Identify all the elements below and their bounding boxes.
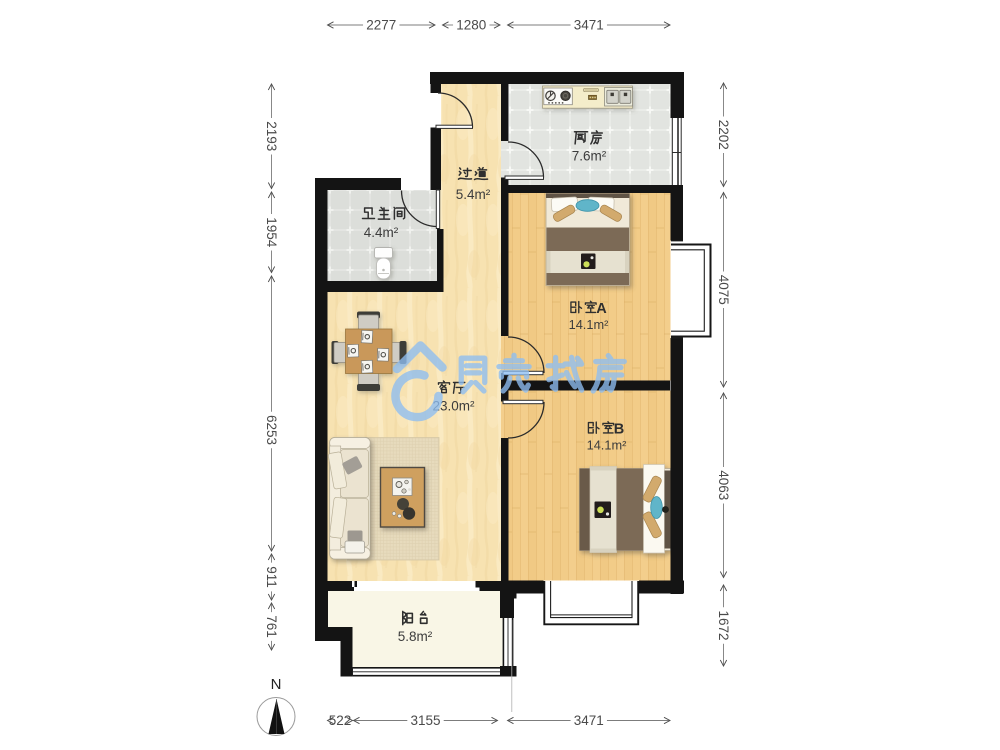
svg-text:5.4m²: 5.4m² <box>456 187 491 202</box>
svg-text:2277: 2277 <box>366 18 396 33</box>
svg-text:4075: 4075 <box>716 275 731 305</box>
svg-text:6253: 6253 <box>264 415 279 445</box>
svg-text:1954: 1954 <box>264 217 279 248</box>
svg-text:5.8m²: 5.8m² <box>398 629 433 644</box>
svg-text:N: N <box>271 676 282 693</box>
svg-text:3471: 3471 <box>574 18 604 33</box>
svg-text:911: 911 <box>264 566 279 588</box>
svg-text:4.4m²: 4.4m² <box>364 225 399 240</box>
svg-text:522: 522 <box>329 713 352 728</box>
svg-text:7.6m²: 7.6m² <box>572 149 607 164</box>
svg-text:B: B <box>614 422 624 438</box>
svg-text:1672: 1672 <box>716 610 731 640</box>
svg-text:3155: 3155 <box>410 713 440 728</box>
svg-text:3471: 3471 <box>574 713 604 728</box>
svg-text:A: A <box>596 301 607 317</box>
svg-text:14.1m²: 14.1m² <box>587 438 628 453</box>
svg-text:14.1m²: 14.1m² <box>569 317 610 332</box>
svg-text:761: 761 <box>264 615 279 638</box>
svg-text:2193: 2193 <box>264 121 279 151</box>
svg-text:1280: 1280 <box>456 18 486 33</box>
svg-text:2202: 2202 <box>716 120 731 150</box>
svg-text:4063: 4063 <box>716 470 731 500</box>
